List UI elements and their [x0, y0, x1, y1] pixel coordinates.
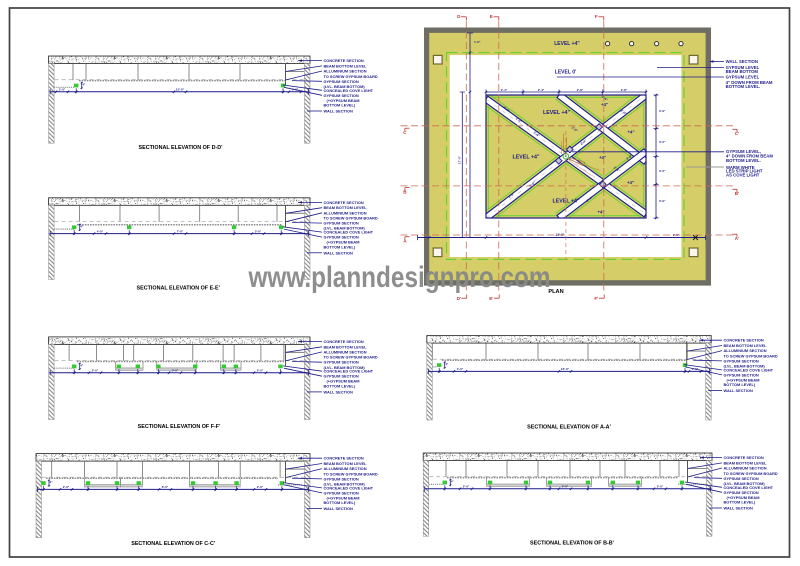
svg-text:ALLUMINIUM SECTION: ALLUMINIUM SECTION	[324, 466, 367, 471]
svg-text:16'-0": 16'-0"	[561, 367, 570, 371]
svg-text:3'-2": 3'-2"	[659, 140, 666, 144]
svg-text:CONCRETE SECTION: CONCRETE SECTION	[724, 455, 764, 460]
svg-text:2'-0": 2'-0"	[92, 369, 99, 373]
svg-text:CONCRETE SECTION: CONCRETE SECTION	[324, 58, 364, 63]
svg-text:E: E	[490, 14, 493, 19]
svg-text:WALL SECTION: WALL SECTION	[726, 59, 758, 64]
svg-text:CONCRETE SECTION: CONCRETE SECTION	[324, 456, 364, 461]
svg-text:CONCRETE SECTION: CONCRETE SECTION	[724, 338, 764, 343]
svg-text:3'-9": 3'-9"	[659, 199, 666, 203]
svg-text:BOTTOM LEVEL): BOTTOM LEVEL)	[324, 383, 356, 388]
svg-text:6'-0": 6'-0"	[162, 485, 169, 489]
svg-text:SECTIONAL ELEVATION OF E-E': SECTIONAL ELEVATION OF E-E'	[137, 286, 220, 292]
svg-text:7'-0": 7'-0"	[177, 229, 184, 233]
svg-text:F': F'	[594, 296, 598, 301]
svg-text:BOTTOM LEVEL): BOTTOM LEVEL)	[724, 382, 756, 387]
svg-text:5'-0": 5'-0"	[562, 485, 569, 489]
svg-text:1'-0": 1'-0"	[457, 367, 464, 371]
svg-text:SECTIONAL ELEVATION OF B-B': SECTIONAL ELEVATION OF B-B'	[530, 541, 614, 547]
svg-text:WALL SECTION: WALL SECTION	[324, 109, 354, 114]
svg-text:2'-4": 2'-4"	[538, 88, 545, 92]
svg-text:3'-2": 3'-2"	[659, 169, 666, 173]
svg-text:PLAN: PLAN	[548, 289, 563, 295]
svg-text:ALLUMINIUM SECTION: ALLUMINIUM SECTION	[324, 69, 367, 74]
svg-text:ALLUMINIUM SECTION: ALLUMINIUM SECTION	[724, 348, 767, 353]
svg-text:2'-0": 2'-0"	[257, 485, 264, 489]
svg-text:E': E'	[489, 296, 493, 301]
svg-text:+4": +4"	[627, 129, 634, 134]
svg-text:1'-0": 1'-0"	[59, 88, 66, 92]
svg-text:2'-0": 2'-0"	[657, 485, 664, 489]
svg-text:BOTTOM LEVEL): BOTTOM LEVEL)	[324, 103, 356, 108]
svg-text:LEVEL +4": LEVEL +4"	[513, 154, 540, 160]
svg-text:CONCRETE SECTION: CONCRETE SECTION	[324, 339, 364, 344]
svg-text:BEAM BOTTOM: BEAM BOTTOM	[726, 69, 759, 74]
svg-text:BOTTOM LEVEL): BOTTOM LEVEL)	[324, 500, 356, 505]
svg-text:WALL SECTION: WALL SECTION	[324, 506, 354, 511]
svg-text:4'-0": 4'-0"	[97, 229, 104, 233]
svg-text:2'-8": 2'-8"	[577, 88, 584, 92]
svg-text:ALLUMINIUM SECTION: ALLUMINIUM SECTION	[324, 349, 367, 354]
svg-text:LEVEL +4": LEVEL +4"	[553, 199, 580, 205]
svg-text:GYPSUM LEVEL: GYPSUM LEVEL	[726, 74, 760, 79]
svg-text:3'-0": 3'-0"	[255, 229, 262, 233]
svg-text:BOTTOM LEVEL.: BOTTOM LEVEL.	[726, 84, 761, 89]
svg-text:17'-0": 17'-0"	[458, 155, 462, 164]
svg-text:5'-0": 5'-0"	[172, 369, 179, 373]
svg-text:www.planndesignpro.com: www.planndesignpro.com	[248, 261, 551, 294]
svg-text:2'-8": 2'-8"	[621, 88, 628, 92]
svg-text:BOTTOM LEVEL.: BOTTOM LEVEL.	[726, 158, 761, 163]
svg-text:WALL SECTION: WALL SECTION	[324, 250, 354, 255]
svg-text:15'-0": 15'-0"	[176, 88, 185, 92]
svg-text:WALL SECTION: WALL SECTION	[324, 389, 354, 394]
svg-text:LEVEL 0': LEVEL 0'	[555, 70, 576, 76]
svg-text:+4": +4"	[627, 180, 634, 185]
svg-text:F: F	[595, 14, 598, 19]
svg-text:ALLUMINIUM SECTION: ALLUMINIUM SECTION	[724, 466, 767, 471]
svg-text:LEVEL +4": LEVEL +4"	[554, 41, 580, 47]
svg-text:SECTIONAL ELEVATION OF D-D': SECTIONAL ELEVATION OF D-D'	[139, 145, 223, 151]
svg-text:SECTIONAL ELEVATION OF C-C': SECTIONAL ELEVATION OF C-C'	[131, 541, 215, 547]
svg-text:+4": +4"	[601, 102, 608, 107]
svg-text:2'-0": 2'-0"	[63, 485, 70, 489]
svg-text:D': D'	[457, 296, 461, 301]
svg-text:2'-4": 2'-4"	[501, 88, 508, 92]
svg-text:SECTIONAL ELEVATION OF F-F': SECTIONAL ELEVATION OF F-F'	[138, 424, 221, 430]
svg-text:WALL SECTION: WALL SECTION	[724, 388, 754, 393]
svg-text:3'-9": 3'-9"	[659, 109, 666, 113]
svg-text:AS COVE LIGHT: AS COVE LIGHT	[726, 173, 760, 178]
svg-text:2'-0": 2'-0"	[257, 369, 264, 373]
svg-text:LEVEL +4": LEVEL +4"	[543, 110, 570, 116]
svg-text:ALLUMINIUM SECTION: ALLUMINIUM SECTION	[324, 210, 367, 215]
svg-text:+4": +4"	[599, 155, 606, 160]
svg-text:WALL SECTION: WALL SECTION	[724, 506, 754, 511]
svg-text:BOTTOM LEVEL): BOTTOM LEVEL)	[324, 244, 356, 249]
svg-text:1'-0": 1'-0"	[474, 40, 481, 44]
svg-text:2'-0": 2'-0"	[463, 485, 470, 489]
svg-text:CONCRETE SECTION: CONCRETE SECTION	[324, 200, 364, 205]
svg-text:SECTIONAL ELEVATION OF A-A': SECTIONAL ELEVATION OF A-A'	[527, 425, 611, 431]
svg-text:BOTTOM LEVEL): BOTTOM LEVEL)	[724, 500, 756, 505]
